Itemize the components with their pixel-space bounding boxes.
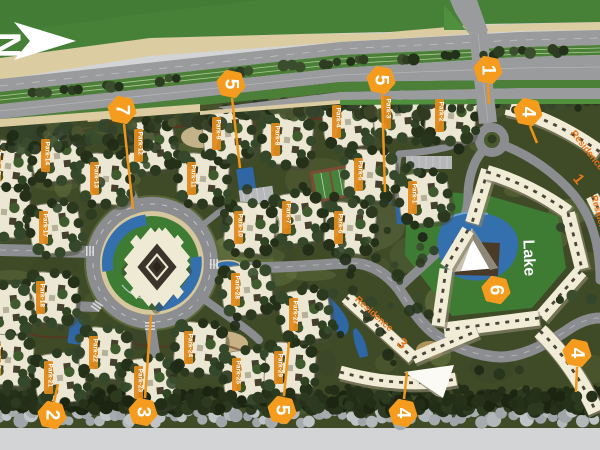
svg-text:Park-6: Park-6 — [337, 214, 344, 234]
svg-text:4: 4 — [567, 348, 588, 359]
svg-text:Park-2: Park-2 — [438, 102, 445, 122]
svg-text:Park-10: Park-10 — [237, 214, 244, 238]
svg-text:Park-29: Park-29 — [277, 354, 284, 378]
svg-text:4: 4 — [518, 107, 539, 118]
svg-text:Park-9: Park-9 — [215, 120, 222, 140]
svg-text:Park-3: Park-3 — [385, 99, 392, 119]
svg-text:Park-13: Park-13 — [93, 165, 100, 189]
svg-text:Park-27: Park-27 — [292, 301, 299, 325]
svg-text:Park-20: Park-20 — [0, 346, 2, 370]
svg-text:Lake: Lake — [519, 239, 537, 276]
svg-text:4: 4 — [393, 408, 414, 419]
svg-text:5: 5 — [371, 75, 392, 86]
svg-text:N: N — [0, 32, 29, 58]
svg-text:Park-15: Park-15 — [0, 152, 2, 176]
svg-text:5: 5 — [221, 79, 242, 90]
svg-text:Park-14: Park-14 — [44, 142, 51, 166]
svg-text:Park-21: Park-21 — [47, 364, 54, 388]
svg-text:Park-8: Park-8 — [274, 126, 281, 146]
svg-text:3: 3 — [133, 407, 154, 418]
svg-text:7: 7 — [112, 105, 133, 116]
svg-text:Park-7: Park-7 — [285, 204, 292, 224]
svg-text:2: 2 — [42, 410, 63, 421]
svg-text:Park-24: Park-24 — [187, 334, 194, 358]
svg-text:Park-4: Park-4 — [335, 108, 342, 128]
svg-text:1: 1 — [478, 65, 499, 76]
svg-text:Park-17: Park-17 — [42, 214, 49, 238]
svg-text:Park-25: Park-25 — [235, 361, 242, 385]
svg-text:Park-22: Park-22 — [92, 339, 99, 363]
svg-text:Park-1: Park-1 — [411, 184, 418, 204]
svg-text:6: 6 — [486, 285, 507, 296]
svg-text:Park-18: Park-18 — [39, 284, 46, 308]
svg-text:Park-11: Park-11 — [190, 165, 197, 189]
svg-text:Park-28: Park-28 — [234, 276, 241, 300]
svg-text:5: 5 — [272, 405, 293, 416]
svg-text:Park-5: Park-5 — [357, 161, 364, 181]
svg-text:Park-23: Park-23 — [137, 369, 144, 393]
svg-text:Park-12: Park-12 — [137, 132, 144, 156]
